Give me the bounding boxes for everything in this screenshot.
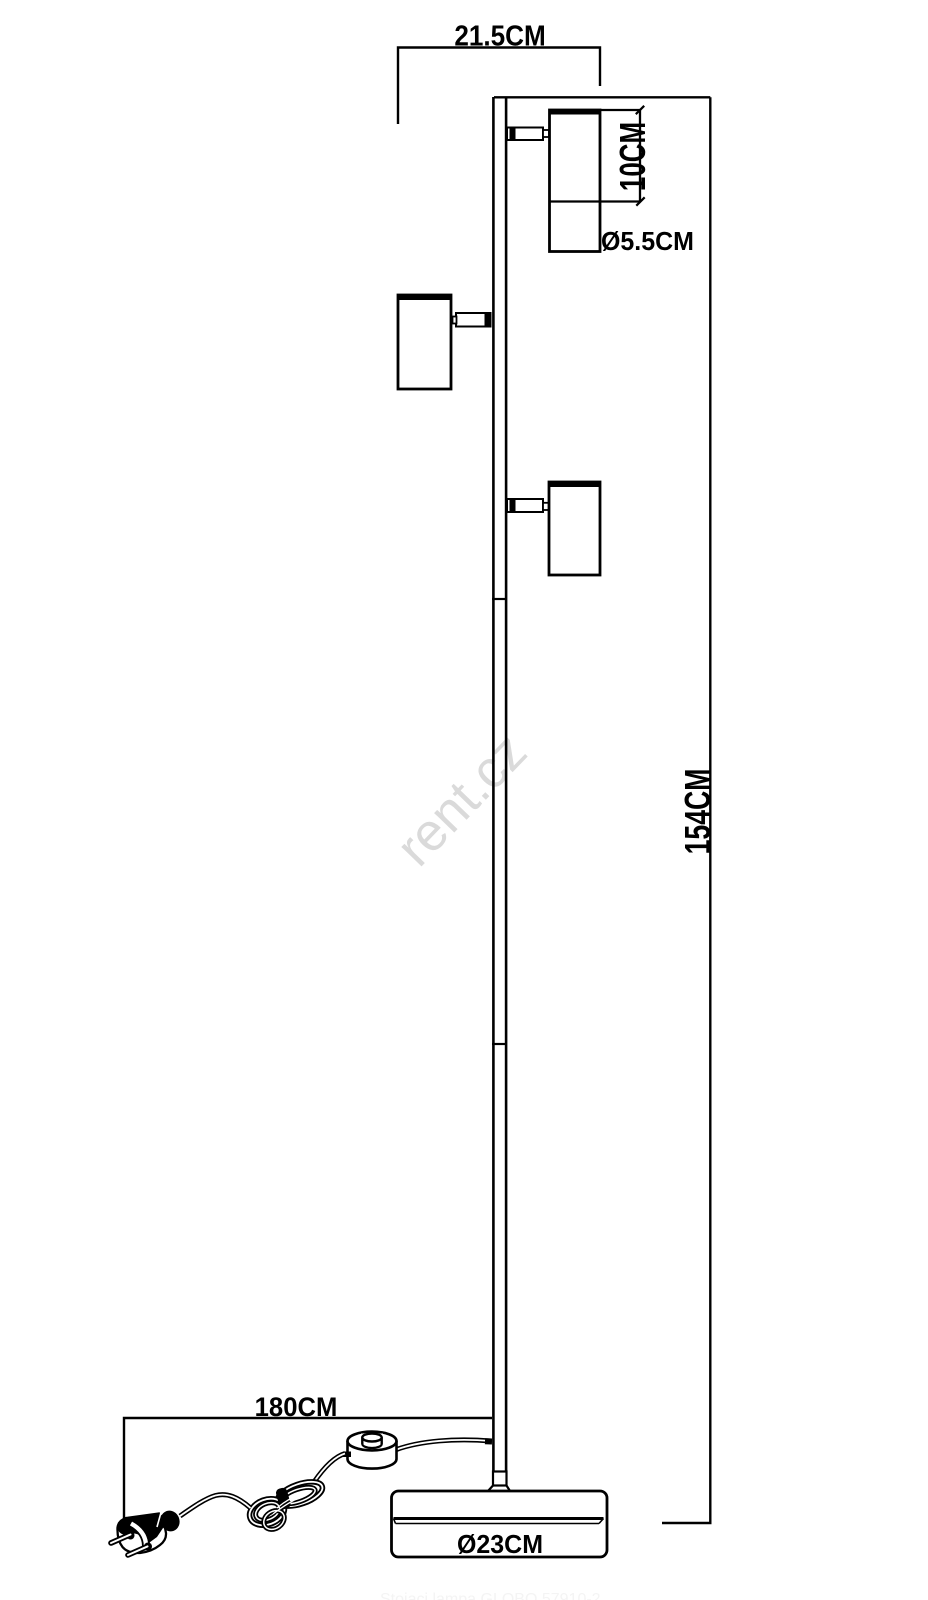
svg-text:Stojaci lampa GLOBO 57910-2: Stojaci lampa GLOBO 57910-2	[380, 1591, 601, 1600]
svg-text:Ø5.5CM: Ø5.5CM	[601, 228, 694, 257]
svg-text:Ø23CM: Ø23CM	[457, 1531, 543, 1560]
svg-text:21.5CM: 21.5CM	[454, 19, 545, 52]
svg-text:rent.cz: rent.cz	[385, 722, 538, 877]
svg-text:154CM: 154CM	[677, 769, 718, 855]
svg-text:180CM: 180CM	[255, 1391, 338, 1422]
svg-text:10CM: 10CM	[613, 122, 653, 191]
